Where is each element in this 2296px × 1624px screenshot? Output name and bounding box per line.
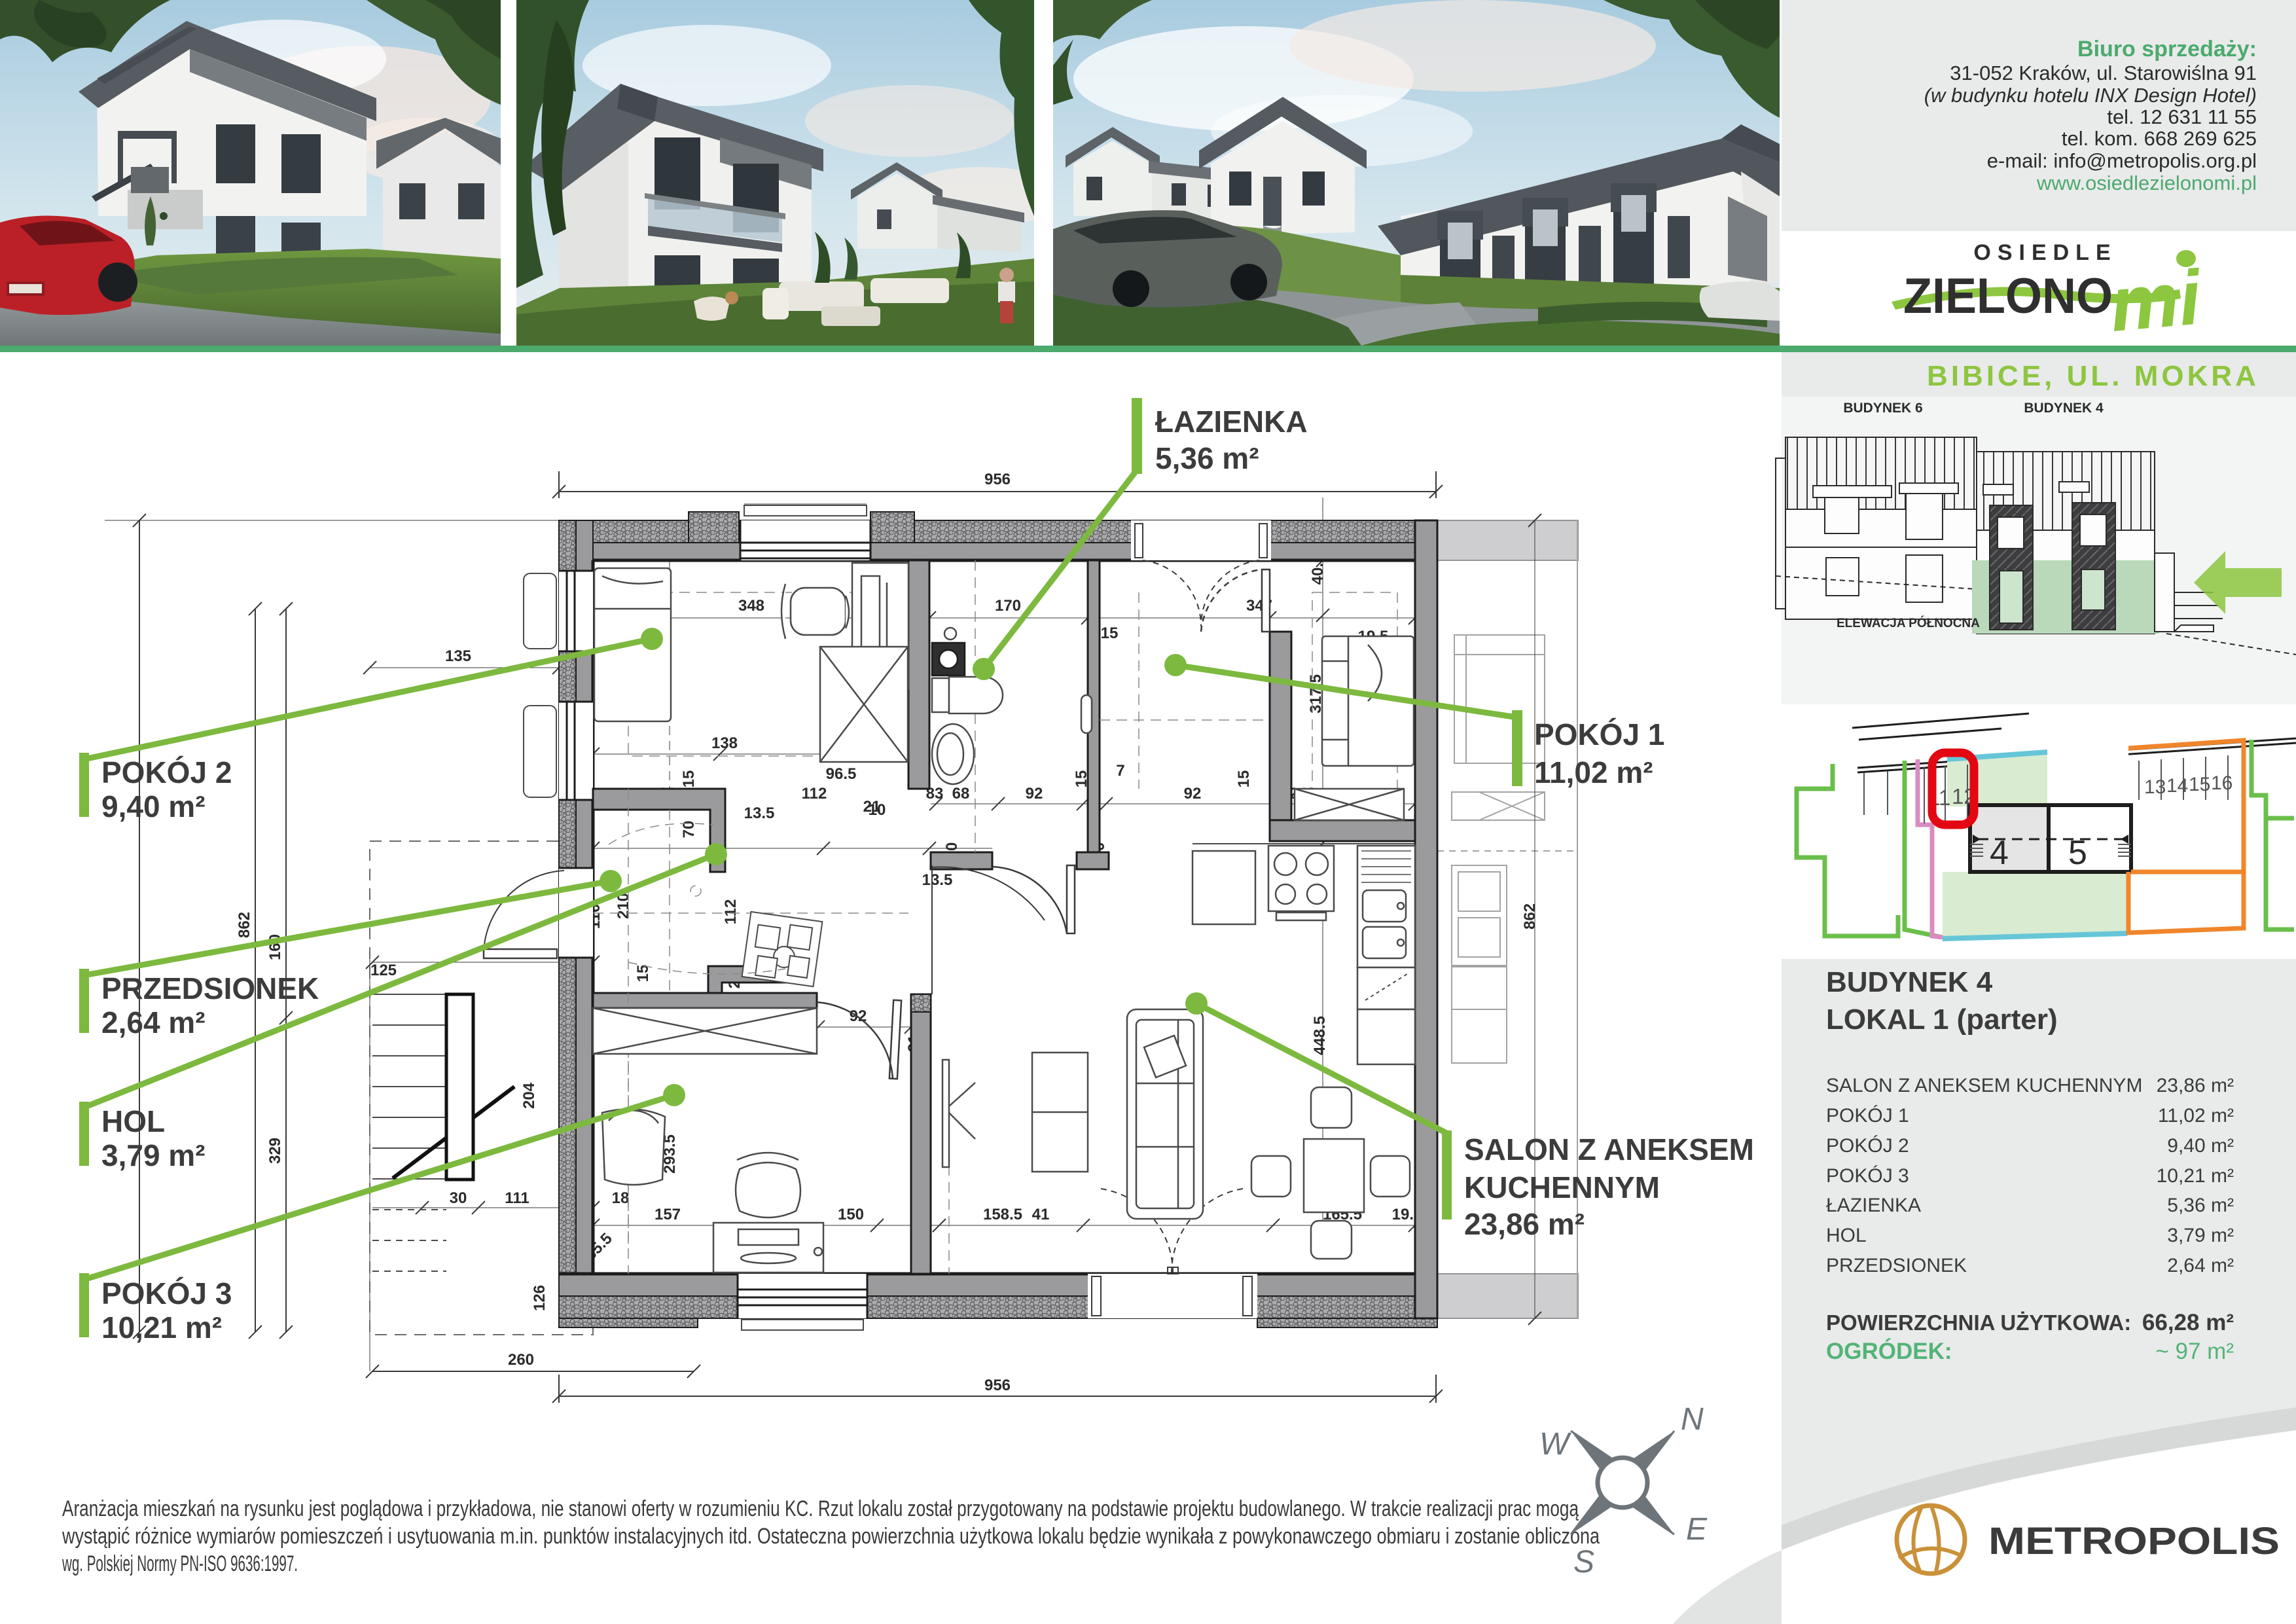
svg-text:112: 112 <box>802 785 827 803</box>
svg-text:23,86 m²: 23,86 m² <box>1464 1207 1585 1241</box>
svg-text:(w budynku hotelu INX Design H: (w budynku hotelu INX Design Hotel) <box>1924 84 2257 107</box>
svg-text:170: 170 <box>995 597 1021 615</box>
svg-text:13.5: 13.5 <box>744 804 775 822</box>
svg-text:10,21 m²: 10,21 m² <box>101 1310 222 1344</box>
svg-text:POKÓJ 3: POKÓJ 3 <box>101 1276 232 1310</box>
svg-text:3,79 m²: 3,79 m² <box>2167 1225 2234 1246</box>
svg-text:ŁAZIENKA: ŁAZIENKA <box>1155 405 1308 439</box>
svg-text:66,28 m²: 66,28 m² <box>2142 1310 2234 1335</box>
svg-text:BUDYNEK 6: BUDYNEK 6 <box>1843 401 1922 416</box>
svg-text:15: 15 <box>680 770 698 788</box>
svg-text:7: 7 <box>1116 762 1124 780</box>
svg-text:Biuro sprzedaży:: Biuro sprzedaży: <box>2077 37 2257 62</box>
svg-text:15: 15 <box>2189 774 2210 795</box>
svg-text:ELEWACJA PÓŁNOCNA: ELEWACJA PÓŁNOCNA <box>1837 616 1980 630</box>
svg-text:wystąpić różnice wymiarów pomi: wystąpić różnice wymiarów pomieszczeń i … <box>62 1524 1600 1549</box>
svg-text:OGRÓDEK:: OGRÓDEK: <box>1826 1338 1952 1364</box>
svg-text:862: 862 <box>236 912 253 938</box>
svg-text:138: 138 <box>711 734 738 752</box>
svg-text:92: 92 <box>1184 785 1202 803</box>
svg-text:POKÓJ 2: POKÓJ 2 <box>101 755 232 789</box>
svg-text:OSIEDLE: OSIEDLE <box>1973 240 2117 265</box>
svg-text:9,40 m²: 9,40 m² <box>2167 1135 2234 1157</box>
svg-text:5: 5 <box>2068 834 2087 872</box>
svg-text:5,36 m²: 5,36 m² <box>1155 441 1259 475</box>
svg-text:10,21 m²: 10,21 m² <box>2157 1165 2234 1187</box>
svg-text:158.5: 158.5 <box>983 1206 1022 1223</box>
svg-text:tel. kom. 668 269 625: tel. kom. 668 269 625 <box>2062 127 2257 150</box>
svg-text:111: 111 <box>505 1189 529 1207</box>
svg-text:14: 14 <box>2166 775 2188 797</box>
svg-text:11,02 m²: 11,02 m² <box>1534 755 1653 789</box>
svg-text:96.5: 96.5 <box>826 765 857 783</box>
svg-text:HOL: HOL <box>101 1104 165 1138</box>
svg-text:68: 68 <box>952 785 970 803</box>
svg-text:~ 97 m²: ~ 97 m² <box>2155 1339 2234 1364</box>
svg-text:348: 348 <box>738 597 764 615</box>
svg-text:956: 956 <box>984 471 1011 488</box>
svg-text:POKÓJ 1: POKÓJ 1 <box>1534 717 1664 751</box>
svg-text:KUCHENNYM: KUCHENNYM <box>1464 1170 1660 1204</box>
svg-text:mi: mi <box>2107 254 2206 348</box>
svg-text:21: 21 <box>863 798 881 816</box>
svg-text:204: 204 <box>520 1082 538 1109</box>
svg-text:E: E <box>1686 1512 1708 1547</box>
svg-text:30: 30 <box>450 1189 467 1207</box>
svg-text:15: 15 <box>1235 770 1253 788</box>
svg-text:112: 112 <box>722 899 740 925</box>
svg-text:2,64 m²: 2,64 m² <box>2167 1255 2234 1276</box>
svg-text:9,40 m²: 9,40 m² <box>101 789 206 823</box>
svg-text:S: S <box>1573 1545 1594 1579</box>
svg-text:W: W <box>1539 1427 1572 1462</box>
svg-text:ZIELONO: ZIELONO <box>1903 268 2113 324</box>
svg-text:135: 135 <box>445 647 471 665</box>
svg-text:HOL: HOL <box>1826 1225 1867 1246</box>
svg-text:11,02 m²: 11,02 m² <box>2158 1105 2234 1127</box>
svg-text:METROPOLIS: METROPOLIS <box>1988 1520 2280 1562</box>
svg-text:Aranżacja mieszkań na rysunku: Aranżacja mieszkań na rysunku jest poglą… <box>62 1496 1579 1521</box>
svg-text:13: 13 <box>2144 776 2166 798</box>
svg-text:POKÓJ 1: POKÓJ 1 <box>1826 1105 1909 1127</box>
svg-text:862: 862 <box>1521 903 1539 929</box>
svg-text:126: 126 <box>531 1285 548 1311</box>
svg-text:448.5: 448.5 <box>1311 1016 1329 1055</box>
svg-text:tel. 12 631 11 55: tel. 12 631 11 55 <box>2107 105 2257 128</box>
svg-text:N: N <box>1681 1402 1704 1437</box>
svg-text:BIBICE, UL. MOKRA: BIBICE, UL. MOKRA <box>1927 360 2259 392</box>
svg-text:SALON Z ANEKSEM: SALON Z ANEKSEM <box>1464 1132 1754 1166</box>
svg-text:329: 329 <box>266 1138 284 1164</box>
svg-text:BUDYNEK 4: BUDYNEK 4 <box>1826 966 1993 998</box>
svg-text:PRZEDSIONEK: PRZEDSIONEK <box>101 971 319 1005</box>
svg-text:SALON Z ANEKSEM KUCHENNYM: SALON Z ANEKSEM KUCHENNYM <box>1826 1075 2142 1096</box>
svg-text:ŁAZIENKA: ŁAZIENKA <box>1826 1195 1921 1216</box>
svg-text:157: 157 <box>655 1206 681 1223</box>
svg-text:POWIERZCHNIA UŻYTKOWA:: POWIERZCHNIA UŻYTKOWA: <box>1826 1310 2131 1335</box>
svg-text:POKÓJ 3: POKÓJ 3 <box>1826 1165 1909 1187</box>
svg-text:4: 4 <box>1990 834 2009 872</box>
svg-text:956: 956 <box>984 1377 1011 1394</box>
svg-text:wg. Polskiej Normy PN-ISO 9636: wg. Polskiej Normy PN-ISO 9636:1997. <box>62 1551 298 1576</box>
svg-text:POKÓJ 2: POKÓJ 2 <box>1826 1135 1909 1157</box>
svg-text:23,86 m²: 23,86 m² <box>2157 1075 2234 1096</box>
svg-text:15: 15 <box>1101 624 1119 642</box>
svg-text:LOKAL 1 (parter): LOKAL 1 (parter) <box>1826 1003 2058 1036</box>
svg-text:150: 150 <box>838 1206 864 1223</box>
svg-text:92: 92 <box>1026 785 1043 803</box>
svg-text:3,79 m²: 3,79 m² <box>101 1138 206 1172</box>
svg-text:41: 41 <box>1032 1206 1050 1223</box>
svg-text:5,36 m²: 5,36 m² <box>2167 1195 2234 1216</box>
svg-text:www.osiedlezielonomi.pl: www.osiedlezielonomi.pl <box>2036 171 2257 194</box>
svg-text:13.5: 13.5 <box>922 871 953 889</box>
svg-text:31-052 Kraków, ul. Starowiślna: 31-052 Kraków, ul. Starowiślna 91 <box>1950 62 2257 84</box>
svg-text:18: 18 <box>612 1189 630 1207</box>
svg-text:16: 16 <box>2211 772 2233 794</box>
svg-text:260: 260 <box>508 1351 534 1369</box>
svg-text:2,64 m²: 2,64 m² <box>101 1005 206 1039</box>
svg-text:BUDYNEK 4: BUDYNEK 4 <box>2024 401 2104 416</box>
svg-text:e-mail: info@metropolis.org.pl: e-mail: info@metropolis.org.pl <box>1987 149 2257 172</box>
svg-text:PRZEDSIONEK: PRZEDSIONEK <box>1826 1255 1967 1276</box>
svg-text:125: 125 <box>370 962 397 979</box>
